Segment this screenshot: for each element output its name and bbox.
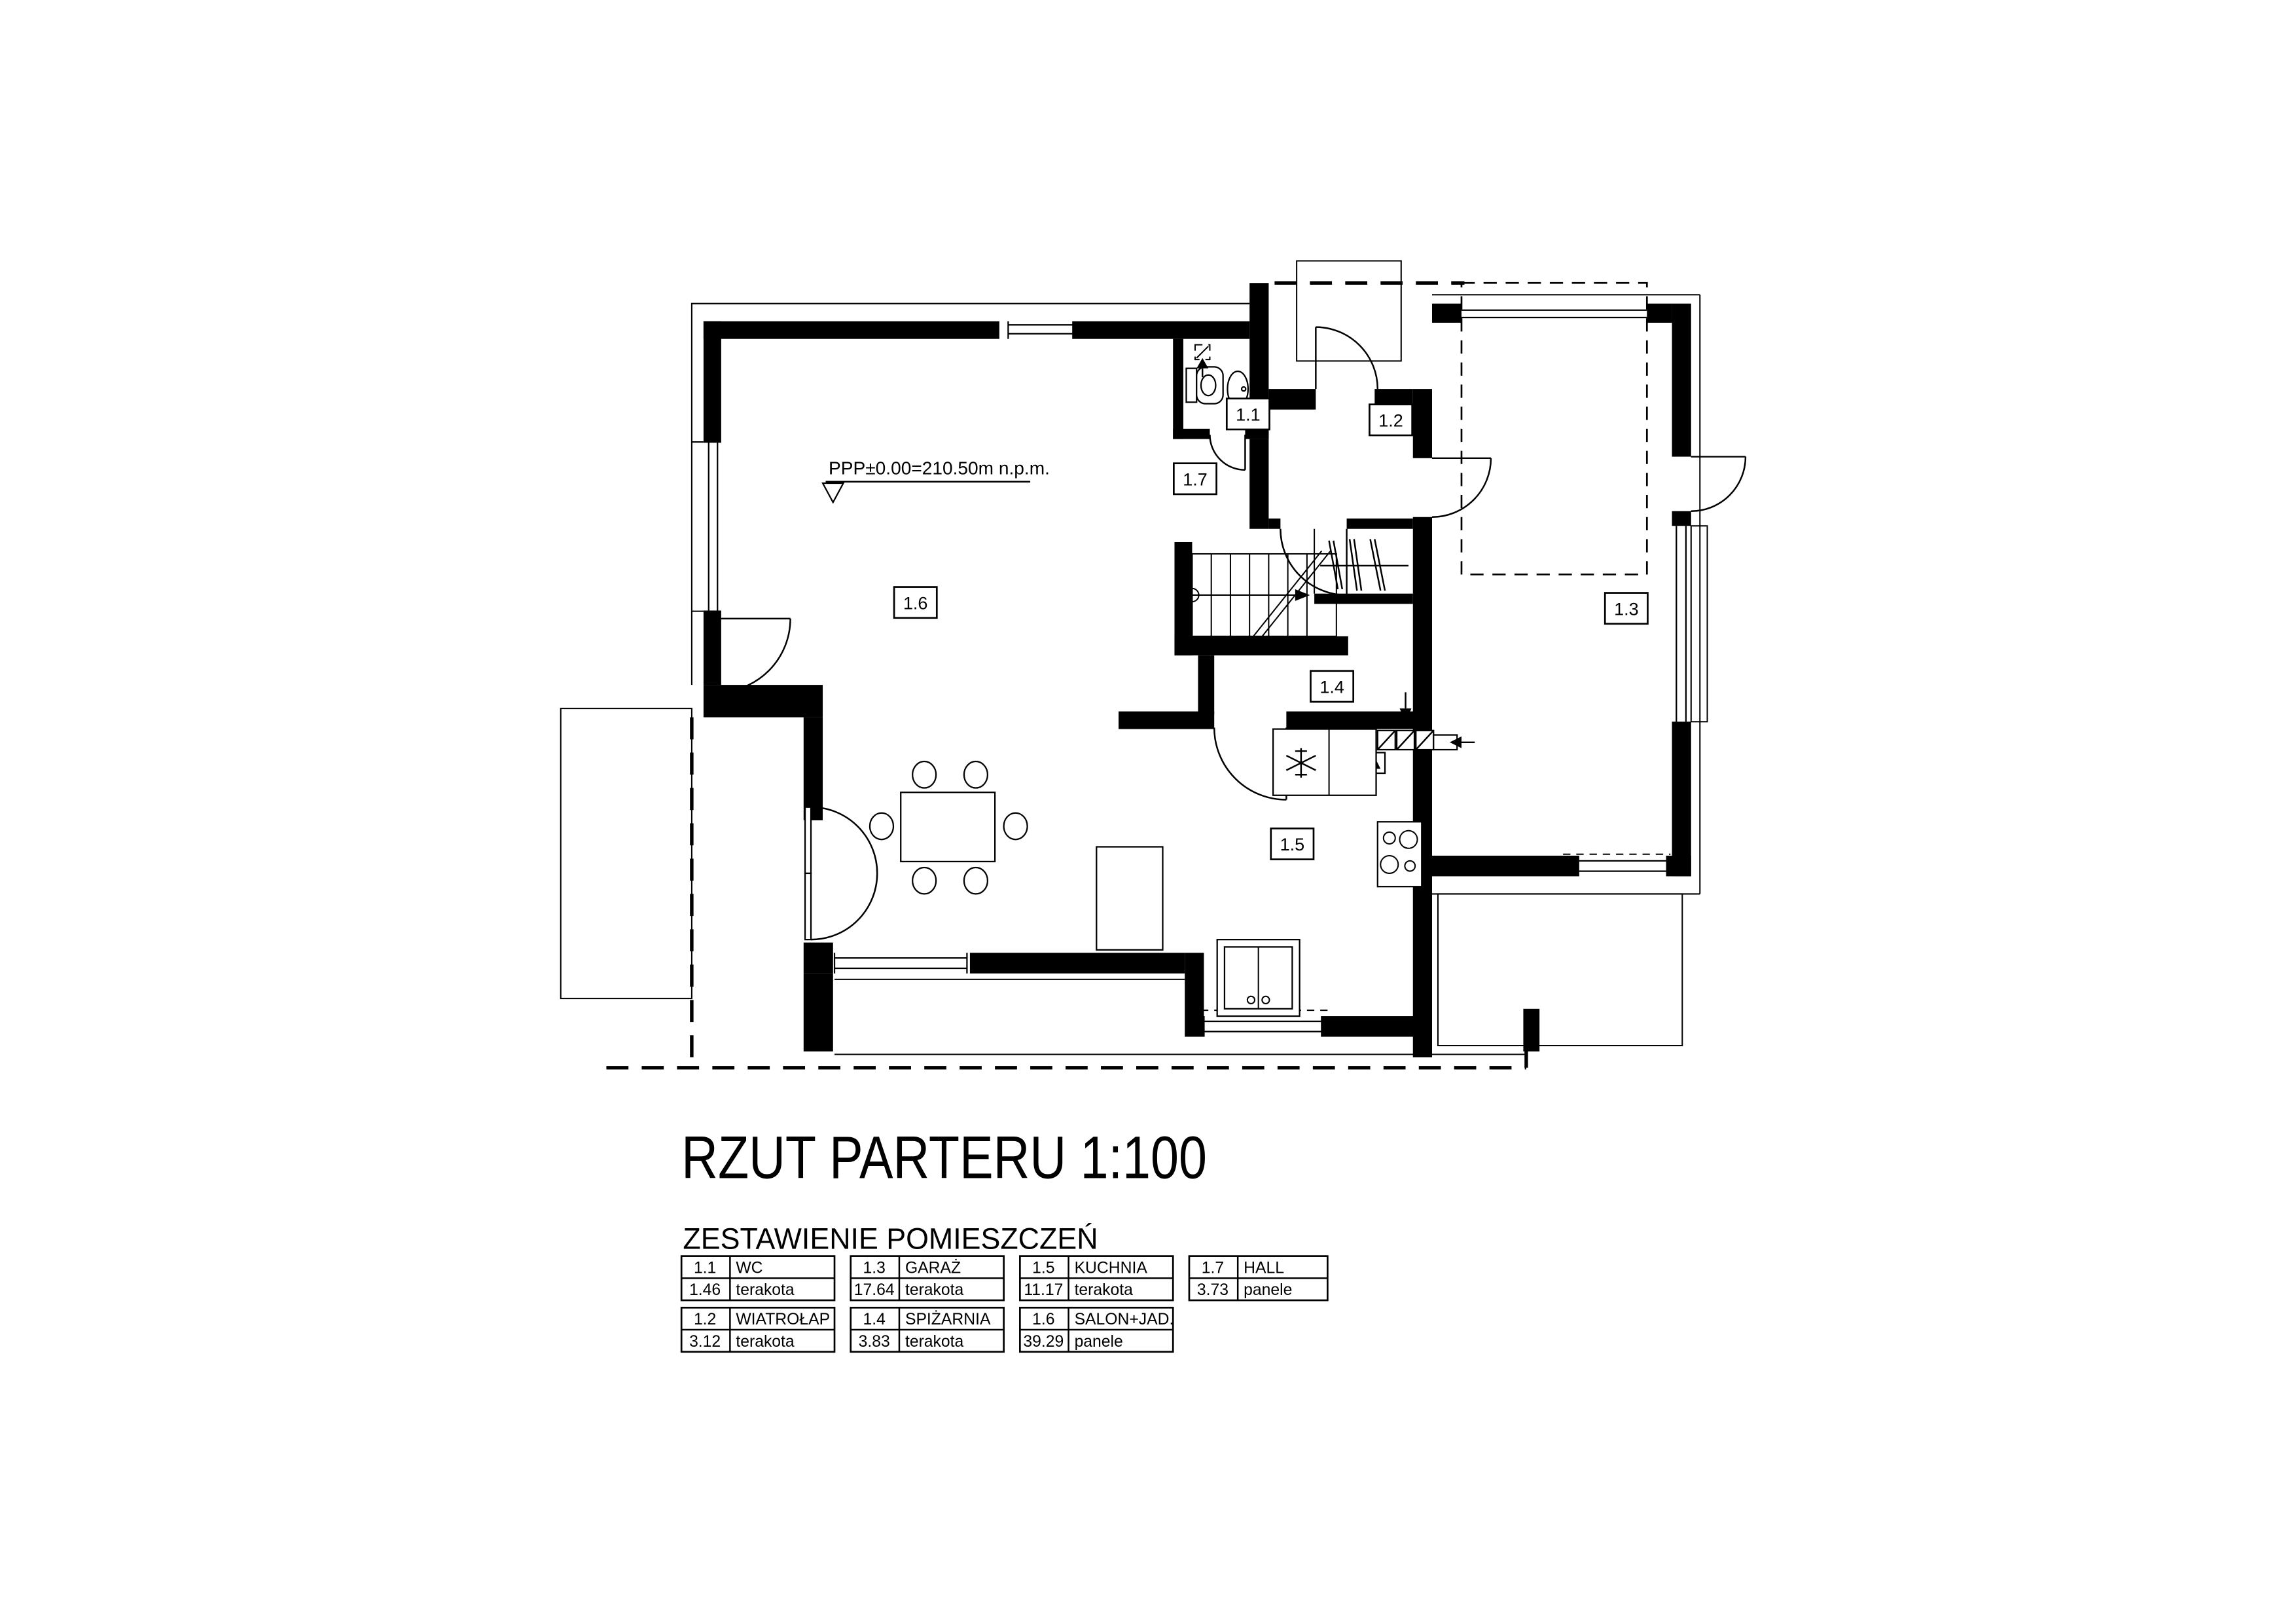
room-label-text: 1.3 bbox=[1614, 599, 1639, 619]
room-label-text: 1.6 bbox=[903, 593, 927, 613]
legend-box-spizarnia: 1.4 SPIŻARNIA 3.83 terakota bbox=[851, 1307, 1004, 1351]
kitchen-sink-cabinet bbox=[1217, 939, 1300, 1016]
legend-floor: terakota bbox=[1075, 1281, 1134, 1299]
roof-overhang-top bbox=[1274, 283, 1647, 574]
window-garage-right bbox=[1676, 526, 1686, 721]
legend-area: 1.46 bbox=[689, 1281, 721, 1299]
room-label-1-6: 1.6 bbox=[894, 587, 937, 618]
legend-area: 3.12 bbox=[689, 1333, 721, 1351]
legend-box-wc: 1.1 WC 1.46 terakota bbox=[681, 1256, 834, 1300]
room-label-text: 1.1 bbox=[1236, 405, 1261, 424]
drawing-title: RZUT PARTERU 1:100 bbox=[681, 1123, 1207, 1191]
legend-box-garaz: 1.3 GARAŻ 17.64 terakota bbox=[851, 1256, 1004, 1300]
room-label-1-4: 1.4 bbox=[1310, 671, 1353, 702]
title-block: RZUT PARTERU 1:100 ZESTAWIENIE POMIESZCZ… bbox=[681, 1123, 1207, 1255]
window-left-living bbox=[704, 442, 721, 611]
legend-area: 39.29 bbox=[1023, 1333, 1064, 1351]
terrace-outline bbox=[561, 708, 692, 998]
rear-porch-outline bbox=[1438, 894, 1682, 1046]
room-label-1-3: 1.3 bbox=[1605, 593, 1647, 624]
legend-floor: panele bbox=[1075, 1333, 1123, 1351]
legend-box-wiatrolap: 1.2 WIATROŁAP 3.12 terakota bbox=[681, 1307, 834, 1351]
windows bbox=[704, 310, 1686, 1037]
legend-name: SPIŻARNIA bbox=[905, 1311, 991, 1328]
room-label-text: 1.7 bbox=[1183, 469, 1208, 489]
dining-table bbox=[870, 761, 1028, 894]
legend-name: KUCHNIA bbox=[1075, 1259, 1148, 1277]
legend-code: 1.7 bbox=[1202, 1259, 1224, 1277]
legend-area: 3.83 bbox=[859, 1333, 890, 1351]
room-label-text: 1.2 bbox=[1378, 410, 1403, 430]
door-living-side bbox=[717, 619, 790, 692]
room-label-1-5: 1.5 bbox=[1271, 828, 1314, 859]
entry-canopy bbox=[1297, 261, 1401, 361]
legend-box-salon: 1.6 SALON+JAD. 39.29 panele bbox=[1020, 1307, 1174, 1351]
stair-direction-arrow-icon bbox=[1295, 589, 1310, 601]
entry-door bbox=[1316, 327, 1377, 389]
wardrobe bbox=[1314, 529, 1408, 594]
legend-area: 11.17 bbox=[1024, 1281, 1063, 1299]
room-label-1-2: 1.2 bbox=[1369, 405, 1412, 435]
room-label-1-1: 1.1 bbox=[1227, 399, 1269, 429]
room-label-text: 1.4 bbox=[1319, 677, 1344, 697]
legend-box-hall: 1.7 HALL 3.73 panele bbox=[1189, 1256, 1327, 1300]
legend-code: 1.1 bbox=[694, 1259, 716, 1277]
floor-plan: 1.1 1.2 1.3 1.4 1.5 1.6 bbox=[561, 261, 1746, 1067]
garage-gate bbox=[1462, 310, 1647, 318]
level-annotation: PPP±0.00=210.50m n.p.m. bbox=[823, 458, 1050, 503]
garage-forecourt bbox=[1462, 283, 1647, 574]
legend-table: 1.1 WC 1.46 terakota 1.3 GARAŻ 17.64 ter… bbox=[681, 1256, 1327, 1352]
legend-area: 3.73 bbox=[1197, 1281, 1229, 1299]
legend-title: ZESTAWIENIE POMIESZCZEŃ bbox=[683, 1222, 1098, 1255]
window-dining bbox=[834, 953, 967, 973]
legend-name: GARAŻ bbox=[905, 1259, 961, 1277]
legend-name: WIATROŁAP bbox=[736, 1311, 830, 1328]
room-label-1-7: 1.7 bbox=[1174, 464, 1216, 494]
legend-floor: terakota bbox=[905, 1333, 964, 1351]
legend-code: 1.3 bbox=[863, 1259, 886, 1277]
legend-name: SALON+JAD. bbox=[1075, 1311, 1174, 1328]
legend-box-kuchnia: 1.5 KUCHNIA 11.17 terakota bbox=[1020, 1256, 1173, 1300]
floor-plan-svg: 1.1 1.2 1.3 1.4 1.5 1.6 bbox=[0, 0, 2296, 1623]
legend-floor: terakota bbox=[736, 1281, 795, 1299]
legend-code: 1.6 bbox=[1032, 1311, 1054, 1328]
kitchen-peninsula bbox=[1096, 847, 1162, 949]
room-label-text: 1.5 bbox=[1280, 835, 1305, 854]
legend-area: 17.64 bbox=[854, 1281, 895, 1299]
drawing-sheet: 1.1 1.2 1.3 1.4 1.5 1.6 bbox=[0, 0, 2296, 1623]
legend-code: 1.5 bbox=[1032, 1259, 1054, 1277]
level-marker-icon bbox=[823, 483, 843, 502]
legend-floor: panele bbox=[1244, 1281, 1292, 1299]
wc-toilet bbox=[1186, 367, 1223, 403]
kitchen-counter-top bbox=[1273, 729, 1376, 795]
legend-code: 1.2 bbox=[694, 1311, 716, 1328]
legend-floor: terakota bbox=[905, 1281, 964, 1299]
window-top-living bbox=[1008, 321, 1073, 339]
french-doors-terrace bbox=[805, 807, 877, 939]
legend-code: 1.4 bbox=[863, 1311, 886, 1328]
cooktop bbox=[1378, 822, 1422, 886]
legend-name: WC bbox=[736, 1259, 762, 1277]
level-annotation-text: PPP±0.00=210.50m n.p.m. bbox=[829, 458, 1050, 479]
legend-floor: terakota bbox=[736, 1333, 795, 1351]
legend-name: HALL bbox=[1244, 1259, 1284, 1277]
